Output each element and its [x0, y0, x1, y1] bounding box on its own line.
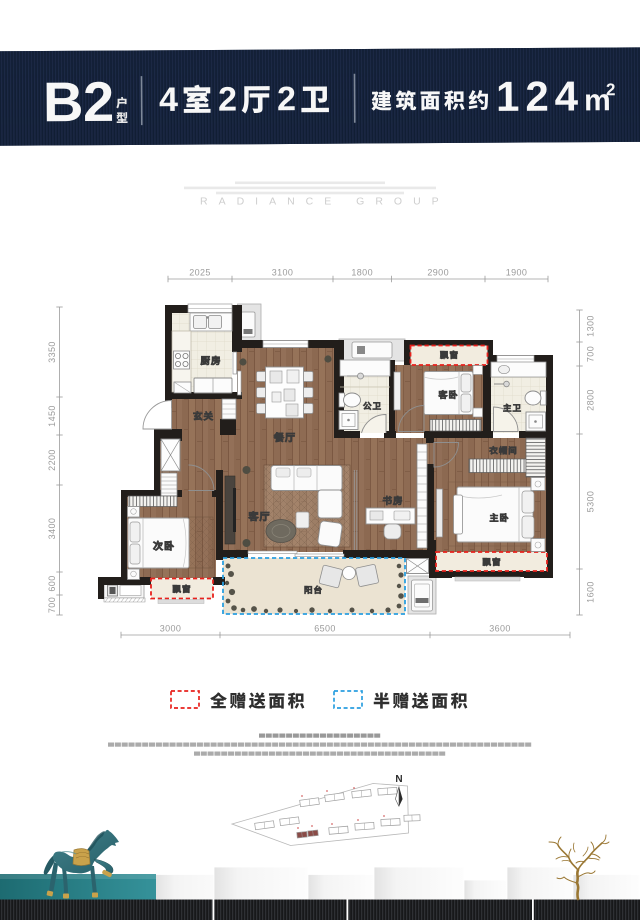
svg-text:2800: 2800	[586, 389, 596, 411]
svg-text:3100: 3100	[272, 268, 294, 278]
svg-text:3350: 3350	[47, 341, 57, 363]
svg-text:1450: 1450	[47, 405, 57, 427]
svg-text:700: 700	[47, 597, 57, 613]
svg-text:124: 124	[496, 72, 584, 120]
svg-text:700: 700	[586, 346, 596, 362]
svg-text:N: N	[395, 774, 402, 785]
svg-text:2900: 2900	[427, 268, 449, 278]
svg-text:2: 2	[606, 80, 616, 99]
svg-text:600: 600	[47, 575, 57, 591]
svg-text:1600: 1600	[586, 581, 596, 603]
svg-text:3400: 3400	[47, 518, 57, 540]
svg-text:3600: 3600	[489, 624, 511, 634]
svg-text:1800: 1800	[351, 268, 373, 278]
svg-text:2200: 2200	[47, 449, 57, 471]
svg-text:3000: 3000	[160, 624, 182, 634]
svg-text:2: 2	[277, 80, 296, 118]
svg-text:6500: 6500	[314, 624, 336, 634]
svg-text:RADIANCE GROUP: RADIANCE GROUP	[200, 196, 450, 208]
svg-text:5300: 5300	[586, 491, 596, 513]
svg-text:2: 2	[218, 81, 237, 119]
svg-text:1300: 1300	[586, 315, 596, 337]
svg-text:2025: 2025	[189, 268, 211, 278]
svg-text:1900: 1900	[506, 268, 528, 278]
svg-text:4: 4	[159, 81, 178, 119]
svg-text:B2: B2	[43, 70, 114, 133]
